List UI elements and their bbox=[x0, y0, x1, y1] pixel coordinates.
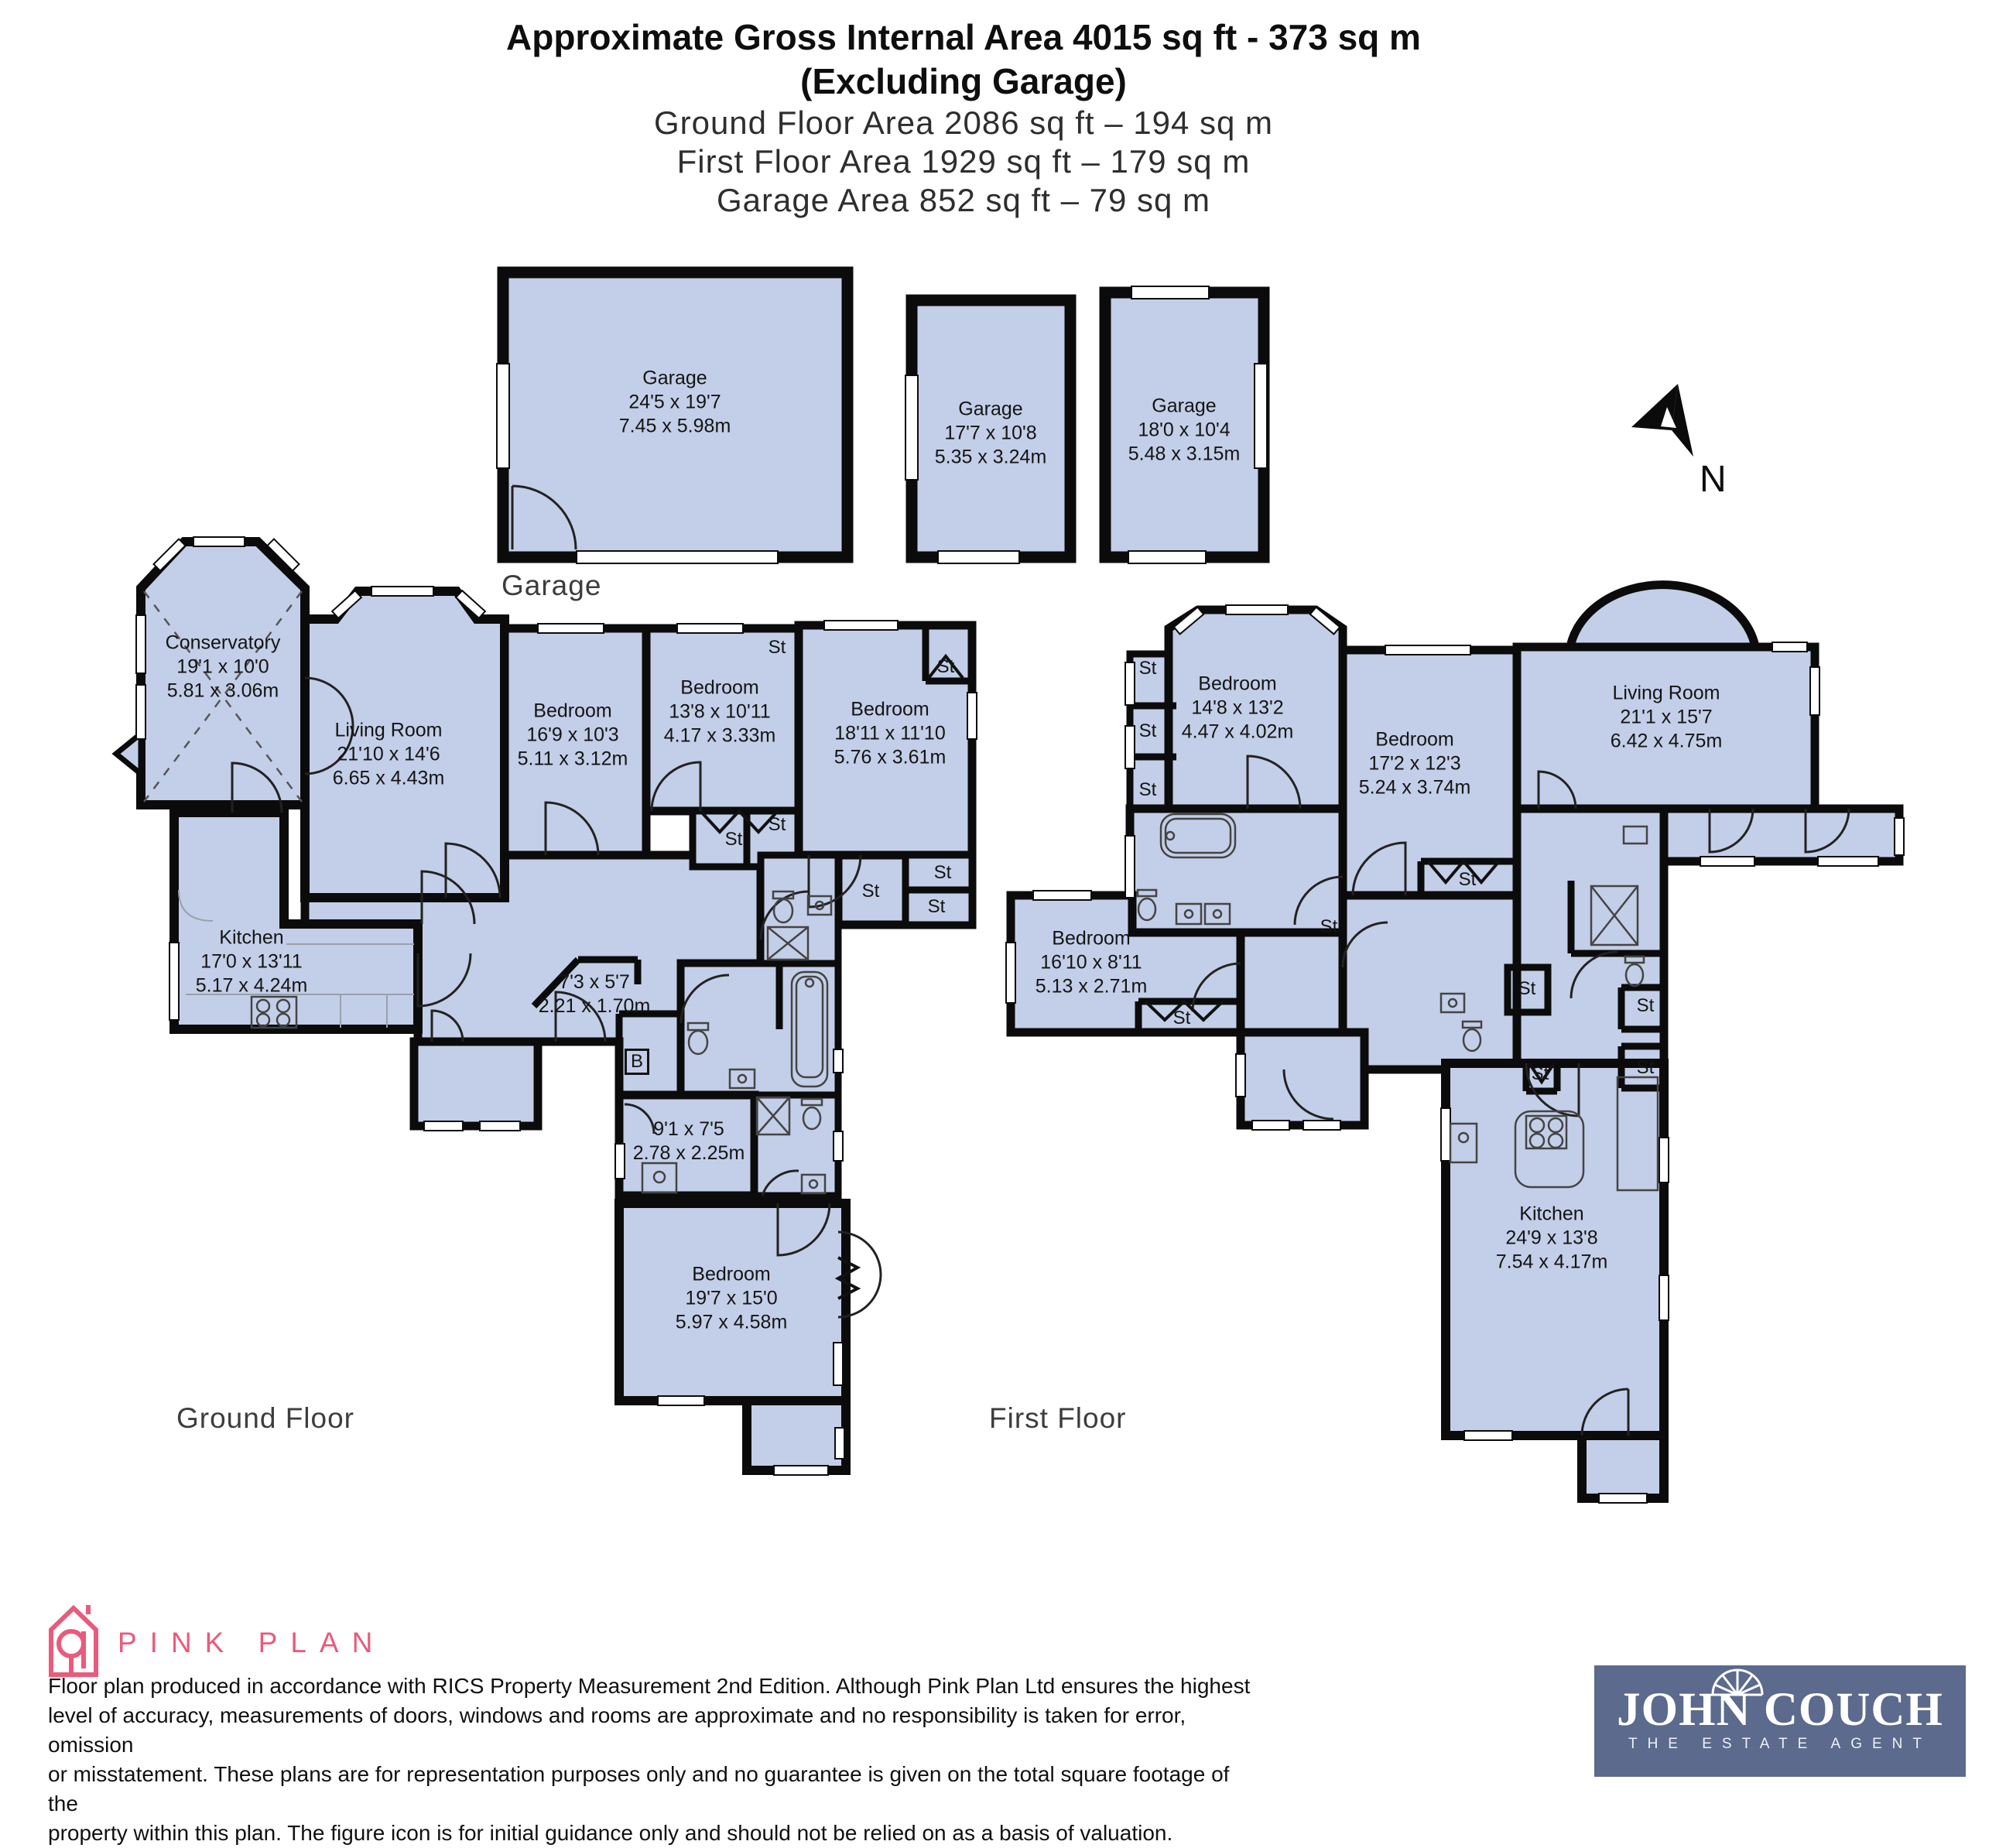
garage-caption: Garage bbox=[502, 570, 601, 602]
storage-label: St bbox=[862, 881, 880, 902]
storage-label: St bbox=[1637, 995, 1655, 1017]
agent-name: JOHN COUCH bbox=[1594, 1687, 1966, 1733]
disclaimer-line: Floor plan produced in accordance with R… bbox=[48, 1672, 1255, 1701]
storage-label: St bbox=[1518, 978, 1536, 1000]
room-label-bedroom-197: Bedroom19'7 x 15'05.97 x 4.58m bbox=[676, 1263, 788, 1335]
estate-agent-logo: JOHN COUCH THE ESTATE AGENT bbox=[1594, 1665, 1966, 1777]
room-label-bedroom-148: Bedroom14'8 x 13'24.47 x 4.02m bbox=[1182, 672, 1294, 744]
title-block: Approximate Gross Internal Area 4015 sq … bbox=[0, 15, 1927, 220]
storage-label: St bbox=[1320, 916, 1338, 938]
storage-label: St bbox=[1139, 720, 1157, 742]
storage-label: St bbox=[1459, 869, 1477, 891]
room-label-bedroom-138: Bedroom13'8 x 10'114.17 x 3.33m bbox=[664, 676, 776, 748]
room-label-living-room-gf: Living Room21'10 x 14'66.65 x 4.43m bbox=[333, 719, 445, 791]
floorplan-graphics bbox=[0, 0, 2006, 1819]
ground-floor-caption: Ground Floor bbox=[176, 1402, 354, 1435]
room-label-conservatory: Conservatory19'1 x 10'05.81 x 3.06m bbox=[166, 631, 281, 703]
agent-tagline: THE ESTATE AGENT bbox=[1594, 1736, 1966, 1753]
room-label-room-91: 9'1 x 7'52.78 x 2.25m bbox=[633, 1117, 745, 1165]
ground-floor-area: Ground Floor Area 2086 sq ft – 194 sq m bbox=[0, 104, 1927, 142]
storage-label: St bbox=[769, 814, 786, 836]
garage-3-label: Garage18'0 x 10'45.48 x 3.15m bbox=[1128, 395, 1241, 467]
first-floor-caption: First Floor bbox=[989, 1402, 1127, 1435]
storage-label: St bbox=[937, 656, 955, 678]
floorplan-page: { "header": { "title1": "Approximate Gro… bbox=[0, 0, 2006, 1819]
pinkplan-brand: PINK PLAN bbox=[118, 1627, 385, 1659]
fanlight-icon bbox=[1710, 1668, 1765, 1696]
north-arrow-icon bbox=[1631, 384, 1693, 457]
room-label-kitchen-gf: Kitchen17'0 x 13'115.17 x 4.24m bbox=[196, 926, 308, 998]
disclaimer-line: level of accuracy, measurements of doors… bbox=[48, 1701, 1255, 1760]
room-label-bedroom-1811: Bedroom18'11 x 11'105.76 x 3.61m bbox=[834, 698, 947, 770]
garage-1-label: Garage24'5 x 19'77.45 x 5.98m bbox=[619, 367, 731, 439]
storage-label: St bbox=[928, 896, 946, 918]
storage-label: St bbox=[769, 637, 786, 659]
storage-label: St bbox=[725, 829, 743, 850]
disclaimer-line: property within this plan. The figure ic… bbox=[48, 1819, 1255, 1848]
pinkplan-logo-icon bbox=[43, 1599, 104, 1681]
storage-label: St bbox=[934, 862, 952, 884]
north-label: N bbox=[1700, 458, 1727, 501]
room-label-lobby-73: 7'3 x 5'72.21 x 1.70m bbox=[539, 970, 651, 1018]
room-label-bedroom-1610: Bedroom16'10 x 8'115.13 x 2.71m bbox=[1036, 927, 1148, 999]
first-floor-area: First Floor Area 1929 sq ft – 179 sq m bbox=[0, 142, 1927, 181]
garage-area: Garage Area 852 sq ft – 79 sq m bbox=[0, 181, 1927, 220]
boiler-label: B bbox=[625, 1049, 649, 1075]
disclaimer-line: or misstatement. These plans are for rep… bbox=[48, 1760, 1255, 1819]
storage-label: St bbox=[1637, 1057, 1655, 1079]
disclaimer: Floor plan produced in accordance with R… bbox=[48, 1672, 1255, 1848]
storage-label: St bbox=[1139, 658, 1157, 679]
storage-label: St bbox=[1532, 1063, 1549, 1085]
garage-2-label: Garage17'7 x 10'85.35 x 3.24m bbox=[935, 398, 1047, 470]
room-label-kitchen-ff: Kitchen24'9 x 13'87.54 x 4.17m bbox=[1496, 1203, 1608, 1275]
storage-label: St bbox=[1139, 779, 1157, 801]
room-label-bedroom-172: Bedroom17'2 x 12'35.24 x 3.74m bbox=[1359, 728, 1471, 800]
storage-label: St bbox=[1173, 1008, 1191, 1029]
room-label-living-room-ff: Living Room21'1 x 15'76.42 x 4.75m bbox=[1611, 682, 1723, 754]
page-subtitle: (Excluding Garage) bbox=[0, 60, 1927, 104]
room-label-bedroom-169: Bedroom16'9 x 10'35.11 x 3.12m bbox=[518, 700, 628, 772]
page-title: Approximate Gross Internal Area 4015 sq … bbox=[0, 15, 1927, 60]
